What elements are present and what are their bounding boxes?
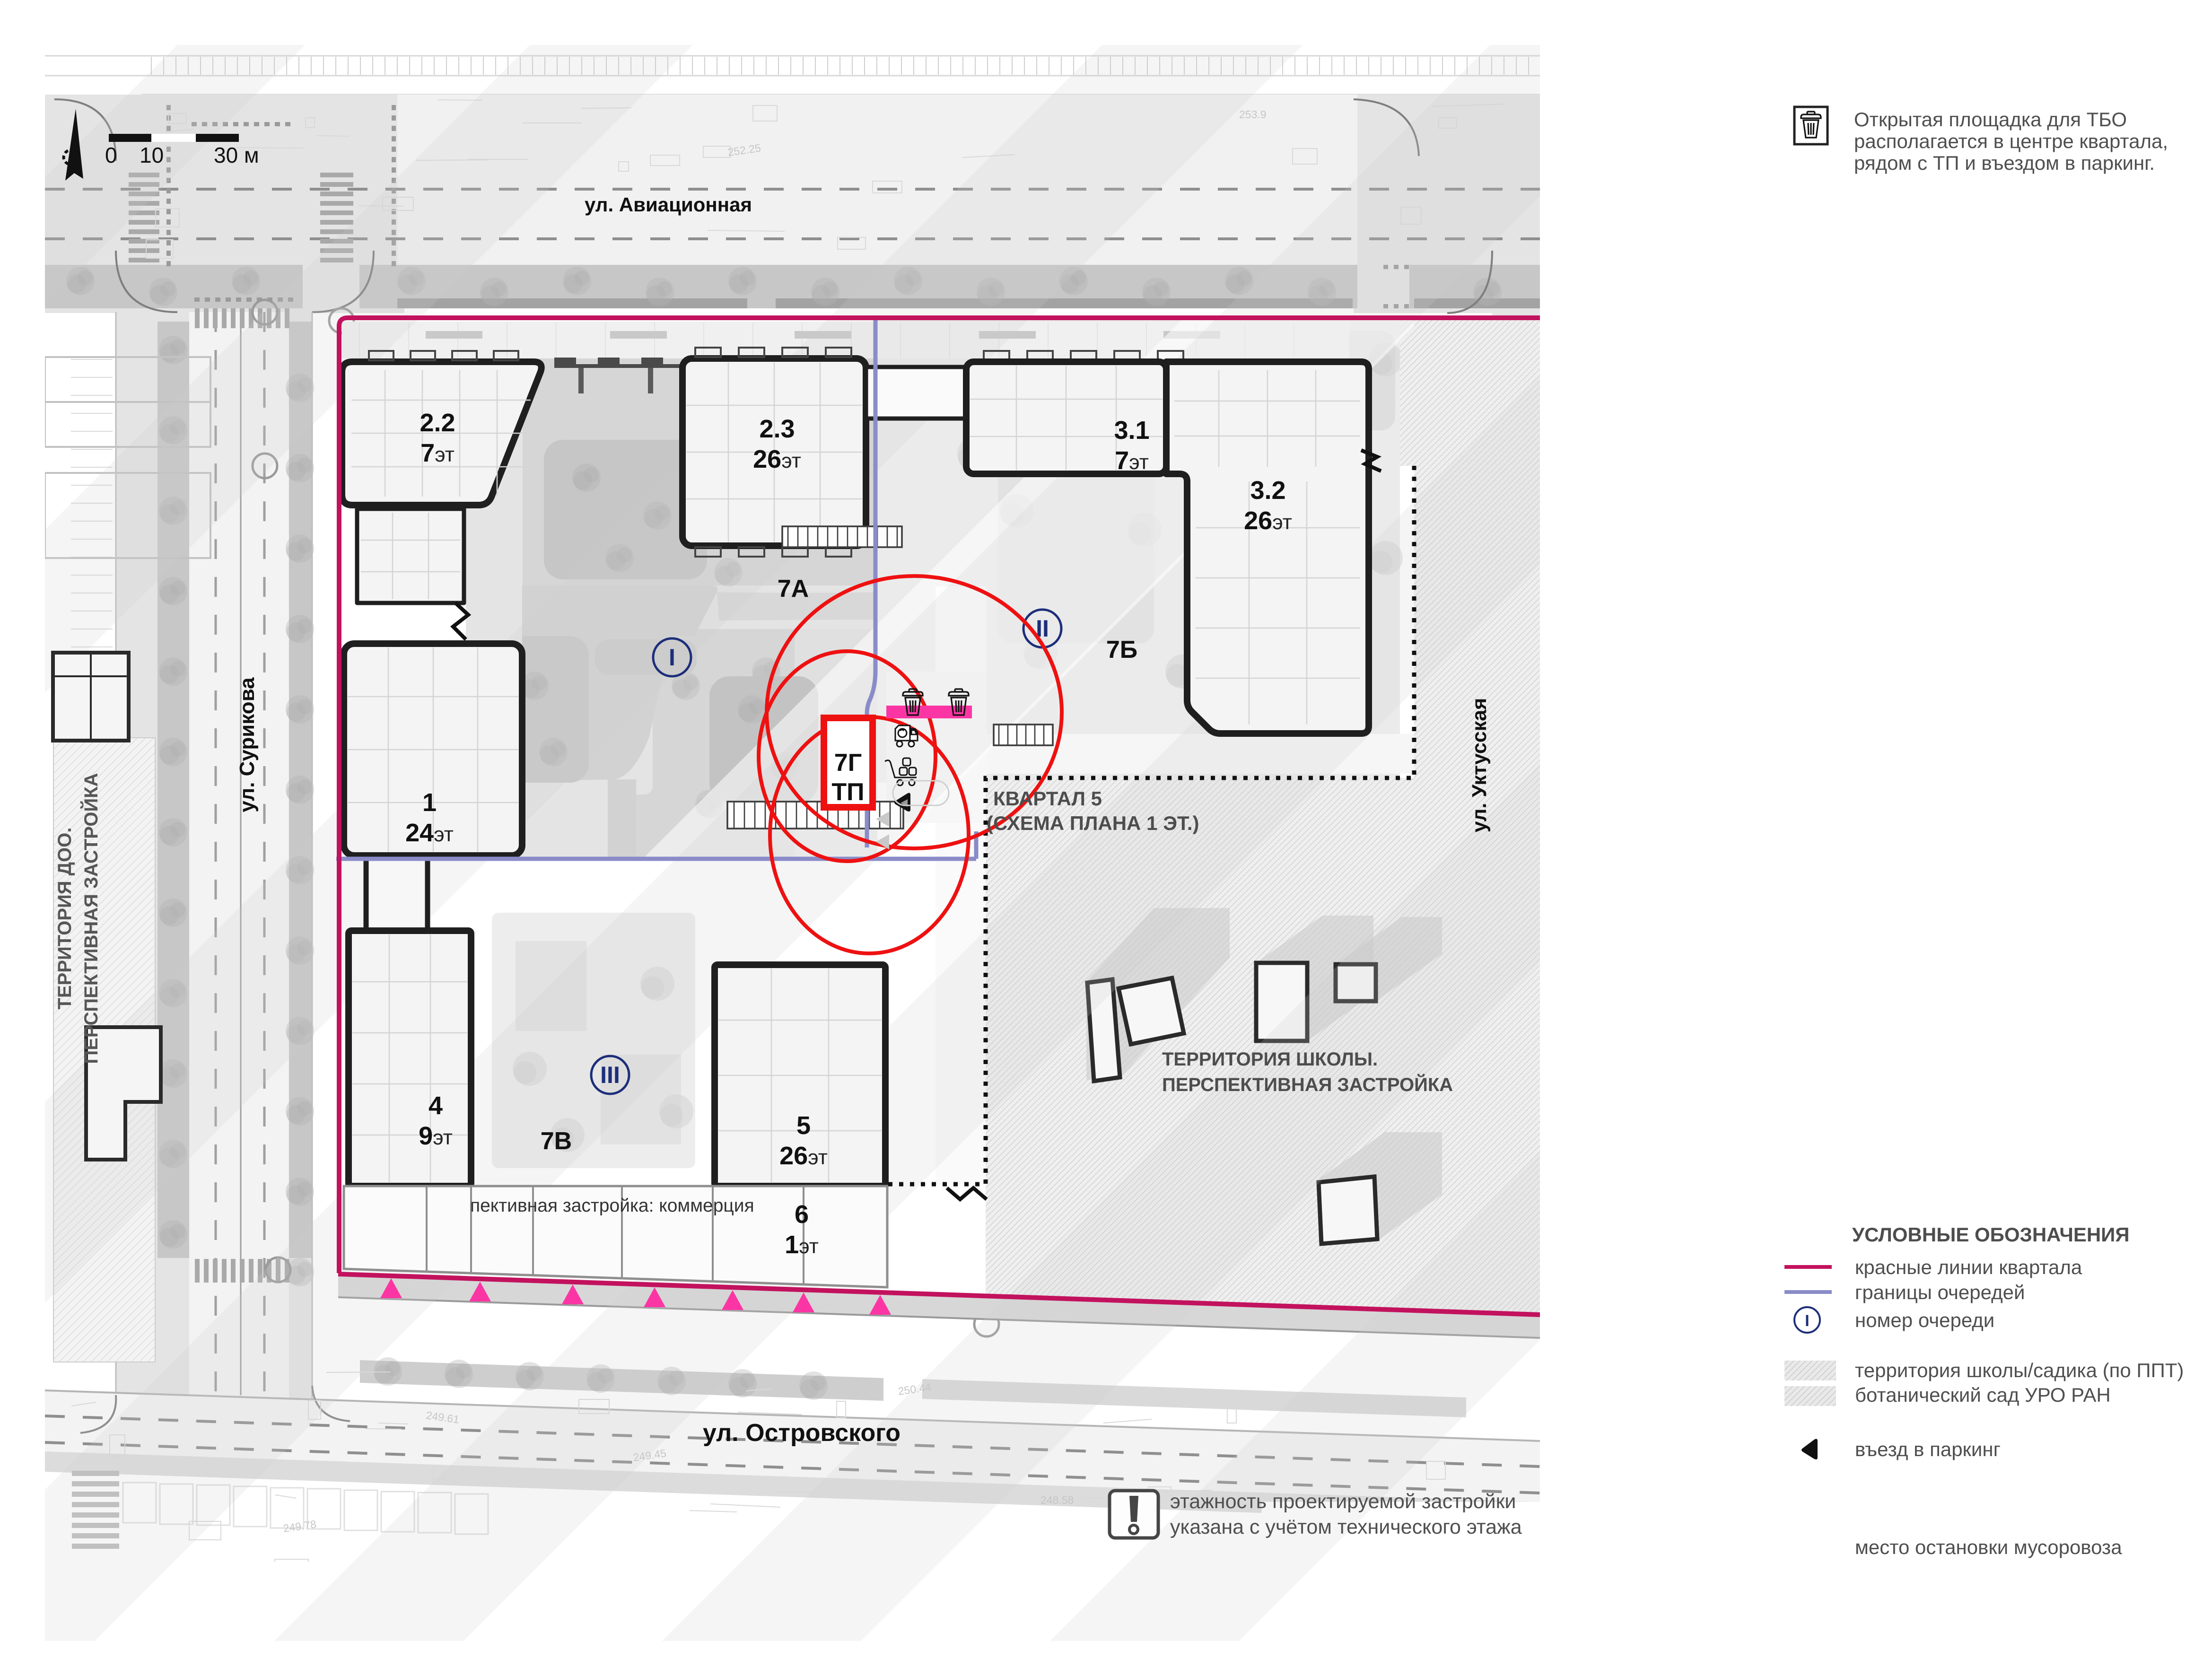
svg-text:ул. Авиационная: ул. Авиационная xyxy=(585,193,752,216)
svg-text:располагается в центре квартал: располагается в центре квартала, xyxy=(1854,130,2168,152)
svg-text:УСЛОВНЫЕ ОБОЗНАЧЕНИЯ: УСЛОВНЫЕ ОБОЗНАЧЕНИЯ xyxy=(1852,1223,2130,1246)
svg-text:рядом с ТП и въездом в паркинг: рядом с ТП и въездом в паркинг. xyxy=(1854,152,2155,174)
svg-text:ТП: ТП xyxy=(831,778,864,806)
svg-text:26эт: 26эт xyxy=(1244,506,1292,535)
svg-text:253.9: 253.9 xyxy=(1239,108,1267,121)
svg-text:30 м: 30 м xyxy=(214,143,259,167)
svg-text:3.1: 3.1 xyxy=(1114,416,1149,445)
svg-text:красные линии квартала: красные линии квартала xyxy=(1855,1256,2082,1278)
svg-text:место остановки мусоровоза: место остановки мусоровоза xyxy=(1855,1536,2122,1558)
svg-text:0: 0 xyxy=(105,143,117,167)
svg-text:ул. Сурикова: ул. Сурикова xyxy=(236,677,259,812)
svg-text:3.2: 3.2 xyxy=(1250,476,1285,505)
svg-text:10: 10 xyxy=(140,143,164,167)
svg-text:9эт: 9эт xyxy=(419,1122,453,1150)
svg-text:5: 5 xyxy=(796,1111,811,1140)
svg-text:III: III xyxy=(600,1062,620,1088)
svg-text:7Б: 7Б xyxy=(1106,636,1137,664)
svg-text:26эт: 26эт xyxy=(779,1142,828,1170)
svg-text:ТЕРРИТОРИЯ ДОО.: ТЕРРИТОРИЯ ДОО. xyxy=(54,828,75,1010)
svg-text:ул. Островского: ул. Островского xyxy=(703,1419,901,1447)
svg-text:встроенная мусорокамера: встроенная мусорокамера xyxy=(1855,1511,2101,1533)
svg-text:этажность проектируемой застро: этажность проектируемой застройки xyxy=(1170,1490,1516,1513)
svg-text:6: 6 xyxy=(795,1200,809,1229)
svg-text:I: I xyxy=(1805,1312,1809,1330)
svg-text:пективная застройка: коммерция: пективная застройка: коммерция xyxy=(470,1196,754,1216)
svg-text:26эт: 26эт xyxy=(753,445,801,473)
svg-text:ПЕРСПЕКТИВНАЯ ЗАСТРОЙКА: ПЕРСПЕКТИВНАЯ ЗАСТРОЙКА xyxy=(80,773,102,1064)
svg-text:7Г: 7Г xyxy=(834,749,862,777)
svg-text:ул. Уктусская: ул. Уктусская xyxy=(1468,698,1491,833)
svg-text:ТЕРРИТОРИЯ ШКОЛЫ.: ТЕРРИТОРИЯ ШКОЛЫ. xyxy=(1162,1049,1378,1070)
svg-text:Открытая площадка для ТБО: Открытая площадка для ТБО xyxy=(1854,108,2127,131)
svg-text:1: 1 xyxy=(422,788,437,817)
svg-text:КВАРТАЛ 5: КВАРТАЛ 5 xyxy=(993,787,1102,810)
svg-text:номер очереди: номер очереди xyxy=(1855,1309,1994,1331)
svg-text:1эт: 1эт xyxy=(785,1231,819,1259)
svg-text:248.58: 248.58 xyxy=(1040,1494,1074,1506)
svg-text:указана с учётом технического: указана с учётом технического этажа xyxy=(1170,1516,1522,1538)
svg-text:(СХЕМА ПЛАНА 1 ЭТ.): (СХЕМА ПЛАНА 1 ЭТ.) xyxy=(987,812,1199,834)
svg-text:ботанический сад УРО РАН: ботанический сад УРО РАН xyxy=(1855,1384,2111,1406)
svg-text:территория школы/садика (по ПП: территория школы/садика (по ППТ) xyxy=(1855,1359,2184,1381)
svg-text:7эт: 7эт xyxy=(420,439,455,467)
svg-text:ПЕРСПЕКТИВНАЯ ЗАСТРОЙКА: ПЕРСПЕКТИВНАЯ ЗАСТРОЙКА xyxy=(1162,1074,1453,1095)
svg-text:2.2: 2.2 xyxy=(420,409,455,437)
svg-text:7эт: 7эт xyxy=(1115,446,1149,475)
svg-text:24эт: 24эт xyxy=(405,819,454,847)
svg-text:7А: 7А xyxy=(778,575,809,602)
svg-text:2.3: 2.3 xyxy=(759,415,795,443)
svg-text:границы очередей: границы очередей xyxy=(1855,1281,2025,1303)
svg-text:4: 4 xyxy=(428,1091,443,1120)
svg-text:въезд в паркинг: въезд в паркинг xyxy=(1855,1438,2001,1460)
svg-text:I: I xyxy=(669,644,675,671)
svg-text:7В: 7В xyxy=(541,1127,572,1155)
